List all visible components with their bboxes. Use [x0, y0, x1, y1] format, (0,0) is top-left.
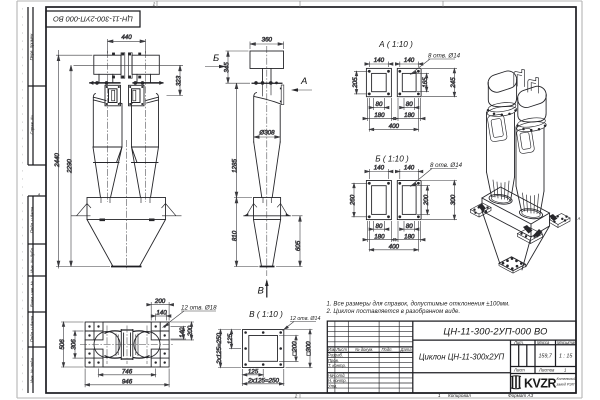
svg-text:8 отв. Ø14: 8 отв. Ø14: [430, 162, 463, 169]
svg-text:Инв. № подл.: Инв. № подл.: [30, 357, 35, 383]
svg-text:№ докум.: № докум.: [355, 347, 373, 352]
svg-text:Подп. и дата: Подп. и дата: [30, 206, 35, 233]
svg-text:8 отв. Ø14: 8 отв. Ø14: [428, 53, 461, 60]
svg-text:Подп. и дата: Подп. и дата: [30, 315, 35, 342]
svg-text:Утв.: Утв.: [328, 383, 338, 388]
svg-text:□200: □200: [291, 341, 298, 356]
svg-text:1285: 1285: [232, 159, 239, 173]
svg-text:А: А: [577, 216, 581, 221]
svg-text:605: 605: [295, 240, 302, 251]
svg-text:Лист: Лист: [335, 347, 347, 352]
svg-text:В: В: [258, 286, 265, 297]
svg-text:В ( 1:10 ): В ( 1:10 ): [249, 310, 283, 319]
svg-text:1 : 15: 1 : 15: [559, 354, 573, 360]
svg-text:Изм: Изм: [328, 347, 336, 352]
svg-text:Ø308: Ø308: [258, 129, 275, 136]
svg-text:ЦН-11-300-2УП-000 ВО: ЦН-11-300-2УП-000 ВО: [443, 327, 547, 337]
svg-text:260: 260: [349, 194, 356, 206]
svg-text:Масштаб: Масштаб: [557, 340, 577, 345]
svg-text:Котельный: Котельный: [557, 377, 577, 381]
svg-text:1: 1: [564, 367, 566, 372]
svg-text:140: 140: [179, 327, 186, 338]
svg-text:□300: □300: [305, 341, 312, 356]
svg-text:306: 306: [70, 339, 77, 350]
svg-text:200: 200: [423, 194, 430, 206]
svg-text:125: 125: [248, 368, 259, 375]
svg-text:Лист: Лист: [513, 367, 525, 372]
svg-text:80: 80: [376, 223, 383, 230]
svg-text:200: 200: [187, 325, 194, 337]
svg-text:80: 80: [376, 101, 383, 108]
svg-text:А: А: [37, 192, 41, 197]
svg-text:323: 323: [175, 75, 182, 86]
svg-text:165: 165: [422, 77, 429, 88]
svg-text:Подп.: Подп.: [382, 347, 393, 352]
svg-text:360: 360: [262, 36, 273, 43]
svg-text:345: 345: [223, 62, 230, 73]
svg-text:2. Циклон поставляется в разоб: 2. Циклон поставляется в разобранном вид…: [326, 309, 461, 315]
svg-text:Справ. №: Справ. №: [30, 115, 35, 134]
svg-text:140: 140: [404, 57, 415, 64]
svg-text:140: 140: [156, 309, 167, 316]
svg-text:Б: Б: [213, 53, 219, 64]
svg-text:Инв. № дубл.: Инв. № дубл.: [30, 247, 35, 273]
svg-text:ЦН-11-300-2УП-000 ВО: ЦН-11-300-2УП-000 ВО: [53, 14, 133, 23]
svg-text:810: 810: [232, 230, 239, 241]
svg-text:Листов: Листов: [538, 367, 555, 372]
svg-text:Т. контр.: Т. контр.: [328, 363, 346, 368]
svg-text:1. Все размеры для справок, до: 1. Все размеры для справок, допустимые о…: [327, 302, 510, 308]
svg-text:KVZR: KVZR: [524, 377, 557, 391]
svg-text:Б ( 1:10 ): Б ( 1:10 ): [375, 155, 409, 164]
svg-text:140: 140: [374, 165, 385, 172]
svg-text:2440: 2440: [54, 153, 61, 168]
svg-text:400: 400: [389, 243, 400, 250]
svg-text:245: 245: [450, 77, 457, 89]
svg-text:125: 125: [227, 333, 234, 344]
svg-text:159,7: 159,7: [538, 354, 552, 360]
svg-text:180: 180: [374, 112, 385, 119]
svg-text:Дата: Дата: [400, 347, 413, 352]
svg-text:1: 1: [438, 393, 441, 398]
svg-text:Масса: Масса: [537, 340, 550, 345]
svg-text:Взам. инв. №: Взам. инв. №: [30, 281, 35, 307]
svg-text:746: 746: [122, 368, 133, 375]
svg-text:140: 140: [404, 165, 415, 172]
svg-text:440: 440: [121, 34, 132, 41]
svg-text:300: 300: [450, 194, 457, 205]
svg-text:завод РЭП: завод РЭП: [556, 383, 575, 387]
svg-text:205: 205: [352, 77, 359, 89]
svg-text:400: 400: [389, 123, 400, 130]
svg-text:Циклон ЦН-11-300х2УП: Циклон ЦН-11-300х2УП: [419, 352, 505, 361]
svg-text:А: А: [300, 76, 307, 87]
svg-text:200: 200: [154, 298, 166, 305]
svg-text:12 отв. Ø18: 12 отв. Ø18: [181, 305, 217, 312]
svg-text:Копировал: Копировал: [448, 393, 471, 398]
svg-text:180: 180: [404, 112, 415, 119]
svg-text:Лит.: Лит.: [513, 340, 524, 345]
svg-text:946: 946: [122, 378, 133, 385]
svg-text:Перв. примен.: Перв. примен.: [29, 33, 34, 61]
svg-text:80: 80: [406, 101, 413, 108]
svg-text:180: 180: [404, 233, 415, 240]
svg-text:180: 180: [374, 233, 385, 240]
svg-text:506: 506: [59, 339, 66, 350]
svg-text:2х125=250: 2х125=250: [247, 377, 279, 384]
svg-text:А ( 1:10 ): А ( 1:10 ): [378, 40, 413, 49]
svg-text:12 отв. Ø14: 12 отв. Ø14: [290, 316, 320, 322]
svg-text:140: 140: [374, 57, 385, 64]
svg-text:80: 80: [406, 223, 413, 230]
svg-text:2х125=250: 2х125=250: [216, 333, 223, 365]
svg-text:Формат А3: Формат А3: [508, 393, 534, 398]
svg-text:2290: 2290: [67, 159, 74, 174]
